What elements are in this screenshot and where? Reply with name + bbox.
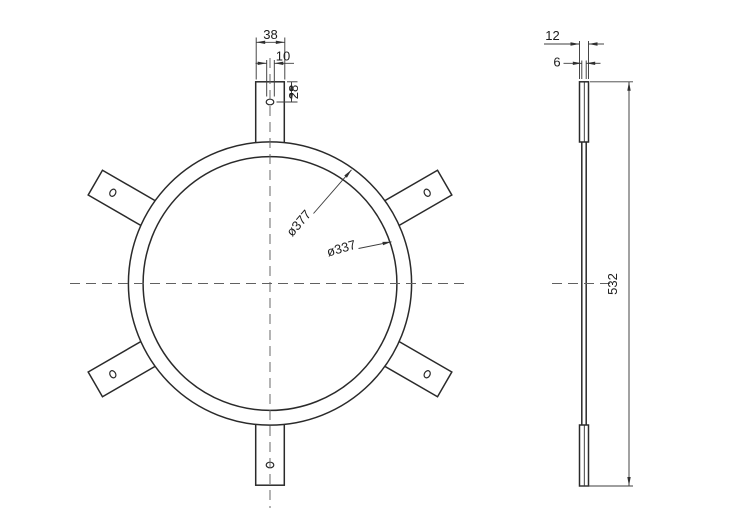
- front-view: 38 10 28 ø377: [70, 27, 464, 508]
- dim-text-hole-offset: 28: [286, 85, 301, 99]
- arrowhead: [627, 477, 630, 486]
- arrowhead: [258, 62, 267, 65]
- dim-overlap-thickness: 12: [544, 28, 604, 79]
- dim-text-overall-height: 532: [605, 273, 620, 295]
- arrowhead: [586, 62, 595, 65]
- dim-text-hole-diameter: 10: [276, 49, 290, 64]
- dim-text-tab-width: 38: [263, 27, 277, 42]
- technical-drawing: 38 10 28 ø377: [0, 0, 750, 529]
- drawing-canvas: 38 10 28 ø377: [0, 0, 750, 529]
- arrowhead: [627, 82, 630, 91]
- arrowhead: [589, 42, 598, 45]
- dim-text-overlap-thickness: 12: [545, 28, 559, 43]
- side-view: 12 6 532: [544, 28, 633, 486]
- dim-plate-thickness: 6: [553, 55, 600, 80]
- dim-text-plate-thickness: 6: [553, 55, 560, 70]
- arrowhead: [573, 62, 582, 65]
- arrowhead: [571, 42, 580, 45]
